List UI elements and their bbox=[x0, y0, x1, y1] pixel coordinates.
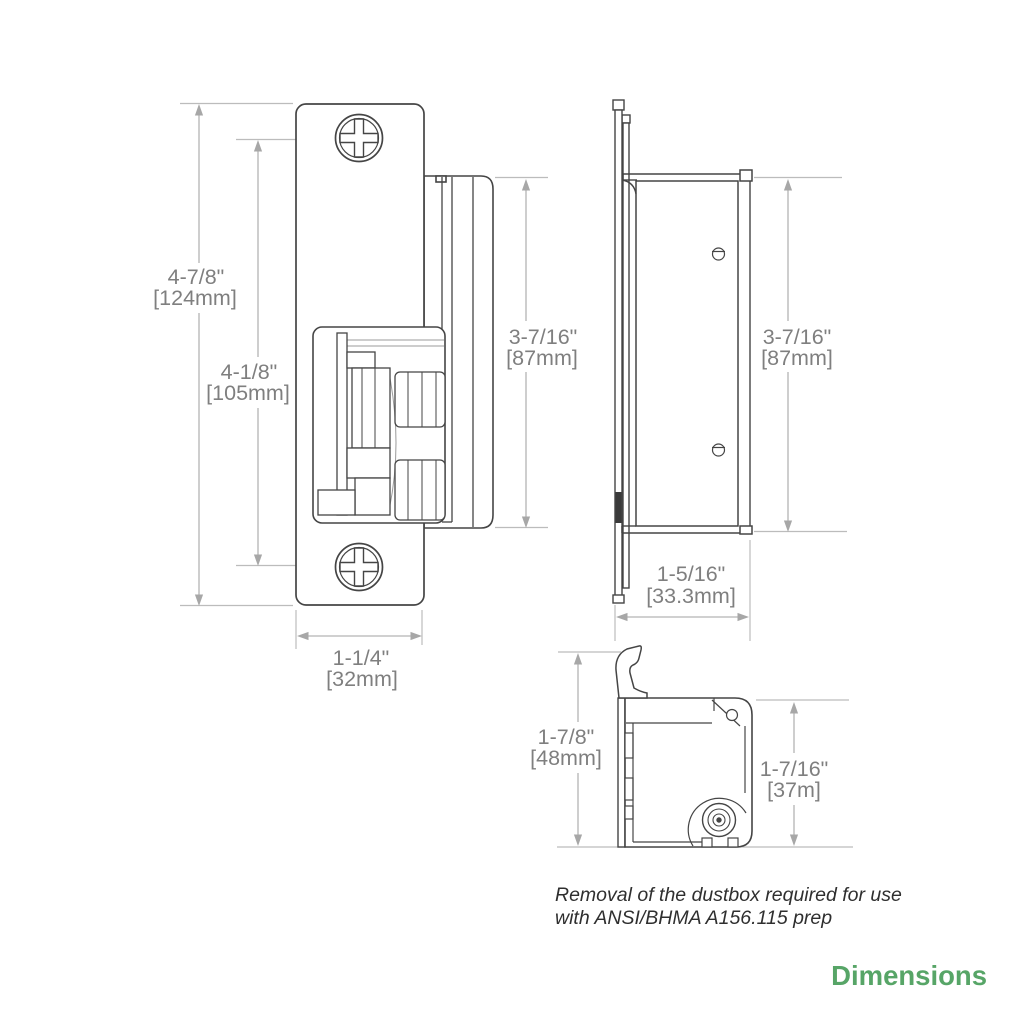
strip-pad bbox=[616, 492, 622, 523]
bottom-view bbox=[616, 646, 752, 847]
roller bbox=[703, 804, 736, 837]
dim-front-body-height-mm: [87mm] bbox=[503, 346, 581, 370]
dim-front-overall-height-mm: [124mm] bbox=[150, 286, 240, 310]
dim-front-faceplate-width-mm: [32mm] bbox=[323, 667, 401, 691]
strike-box bbox=[636, 170, 752, 534]
dim-front-screw-spacing-mm: [105mm] bbox=[203, 381, 293, 405]
dim-side-depth-in: 1-5/16" bbox=[654, 562, 729, 586]
bottom-screw bbox=[336, 544, 383, 591]
page-title: Dimensions bbox=[831, 960, 987, 992]
dim-side-body-height-mm: [87mm] bbox=[758, 346, 836, 370]
dustbox-note-line2: with ANSI/BHMA A156.115 prep bbox=[555, 907, 902, 930]
dimensions-diagram-page: 4-7/8" [124mm] 4-1/8" [105mm] 3-7/16" [8… bbox=[0, 0, 1024, 1024]
dustbox-note: Removal of the dustbox required for use … bbox=[555, 884, 902, 929]
corner-screw-hole bbox=[727, 710, 738, 721]
latch-cavity bbox=[313, 327, 445, 523]
dim-side-depth-mm: [33.3mm] bbox=[643, 584, 739, 608]
side-view bbox=[613, 100, 752, 603]
technical-drawing bbox=[0, 0, 1024, 1024]
dim-bottom-body-depth-mm: [37m] bbox=[764, 778, 824, 802]
dim-bottom-overall-depth-mm: [48mm] bbox=[527, 746, 605, 770]
keeper-hook bbox=[616, 646, 647, 698]
front-view bbox=[296, 104, 493, 605]
top-screw bbox=[336, 115, 383, 162]
dustbox-note-line1: Removal of the dustbox required for use bbox=[555, 884, 902, 907]
